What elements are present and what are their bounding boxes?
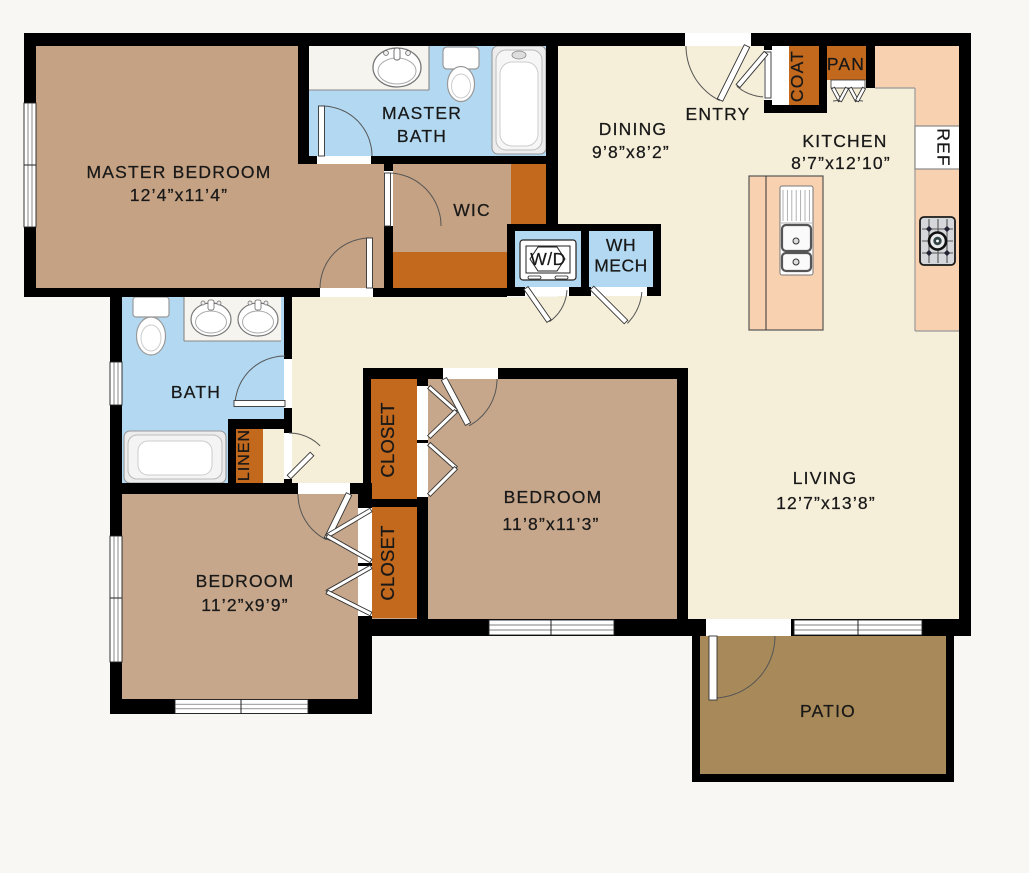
svg-text:MASTER BEDROOM: MASTER BEDROOM [86, 162, 271, 182]
svg-text:DINING: DINING [599, 119, 667, 139]
svg-text:11’8”x11’3”: 11’8”x11’3” [502, 514, 599, 534]
svg-text:BEDROOM: BEDROOM [196, 571, 295, 591]
svg-text:WIC: WIC [453, 200, 491, 220]
svg-text:ENTRY: ENTRY [686, 104, 751, 124]
svg-text:12’7”x13’8”: 12’7”x13’8” [776, 493, 876, 513]
svg-text:BATH: BATH [397, 126, 447, 146]
svg-text:REF: REF [934, 128, 954, 167]
svg-text:BATH: BATH [171, 382, 221, 402]
svg-text:8’7”x12’10”: 8’7”x12’10” [791, 153, 891, 173]
svg-text:11’2”x9’9”: 11’2”x9’9” [201, 595, 289, 615]
svg-text:CLOSET: CLOSET [377, 402, 398, 477]
svg-text:PAN: PAN [827, 54, 865, 74]
svg-text:W/D: W/D [530, 249, 566, 269]
svg-text:MASTER: MASTER [382, 103, 462, 123]
svg-text:KITCHEN: KITCHEN [802, 131, 887, 151]
svg-text:9’8”x8’2”: 9’8”x8’2” [592, 142, 670, 162]
svg-text:BEDROOM: BEDROOM [504, 487, 603, 507]
svg-text:LINEN: LINEN [236, 429, 253, 481]
svg-text:WH: WH [606, 235, 636, 255]
svg-text:PATIO: PATIO [800, 701, 856, 721]
svg-text:CLOSET: CLOSET [377, 525, 398, 600]
svg-text:MECH: MECH [594, 256, 648, 276]
svg-text:COAT: COAT [787, 50, 807, 102]
svg-text:LIVING: LIVING [793, 468, 858, 488]
svg-text:12’4”x11’4”: 12’4”x11’4” [130, 185, 228, 205]
